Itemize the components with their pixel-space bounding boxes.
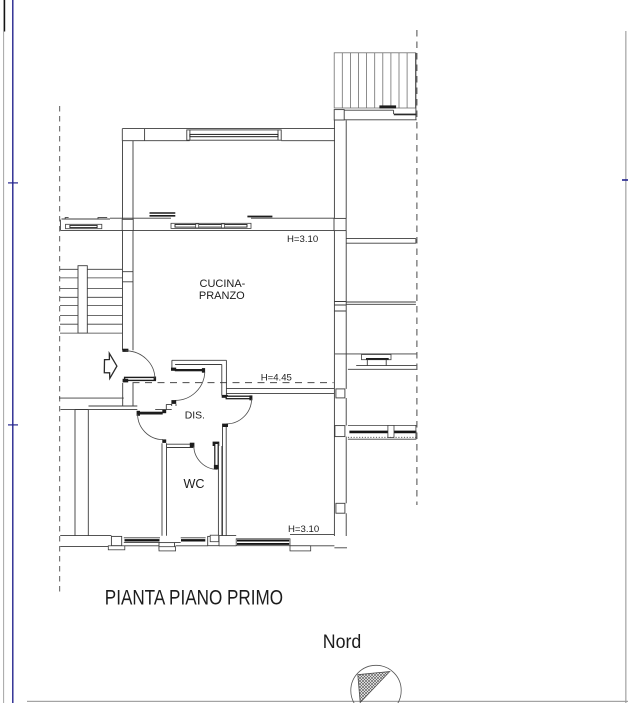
svg-text:Nord: Nord: [323, 631, 362, 653]
svg-text:CUCINA-: CUCINA-: [200, 278, 246, 290]
svg-text:H=3.10: H=3.10: [287, 234, 318, 245]
svg-text:DIS.: DIS.: [185, 410, 205, 421]
svg-text:PIANTA PIANO PRIMO: PIANTA PIANO PRIMO: [105, 586, 283, 609]
svg-text:H=3.10: H=3.10: [288, 524, 319, 535]
svg-text:PRANZO: PRANZO: [199, 290, 245, 302]
svg-text:H=4.45: H=4.45: [261, 372, 292, 383]
svg-text:WC: WC: [184, 477, 205, 491]
